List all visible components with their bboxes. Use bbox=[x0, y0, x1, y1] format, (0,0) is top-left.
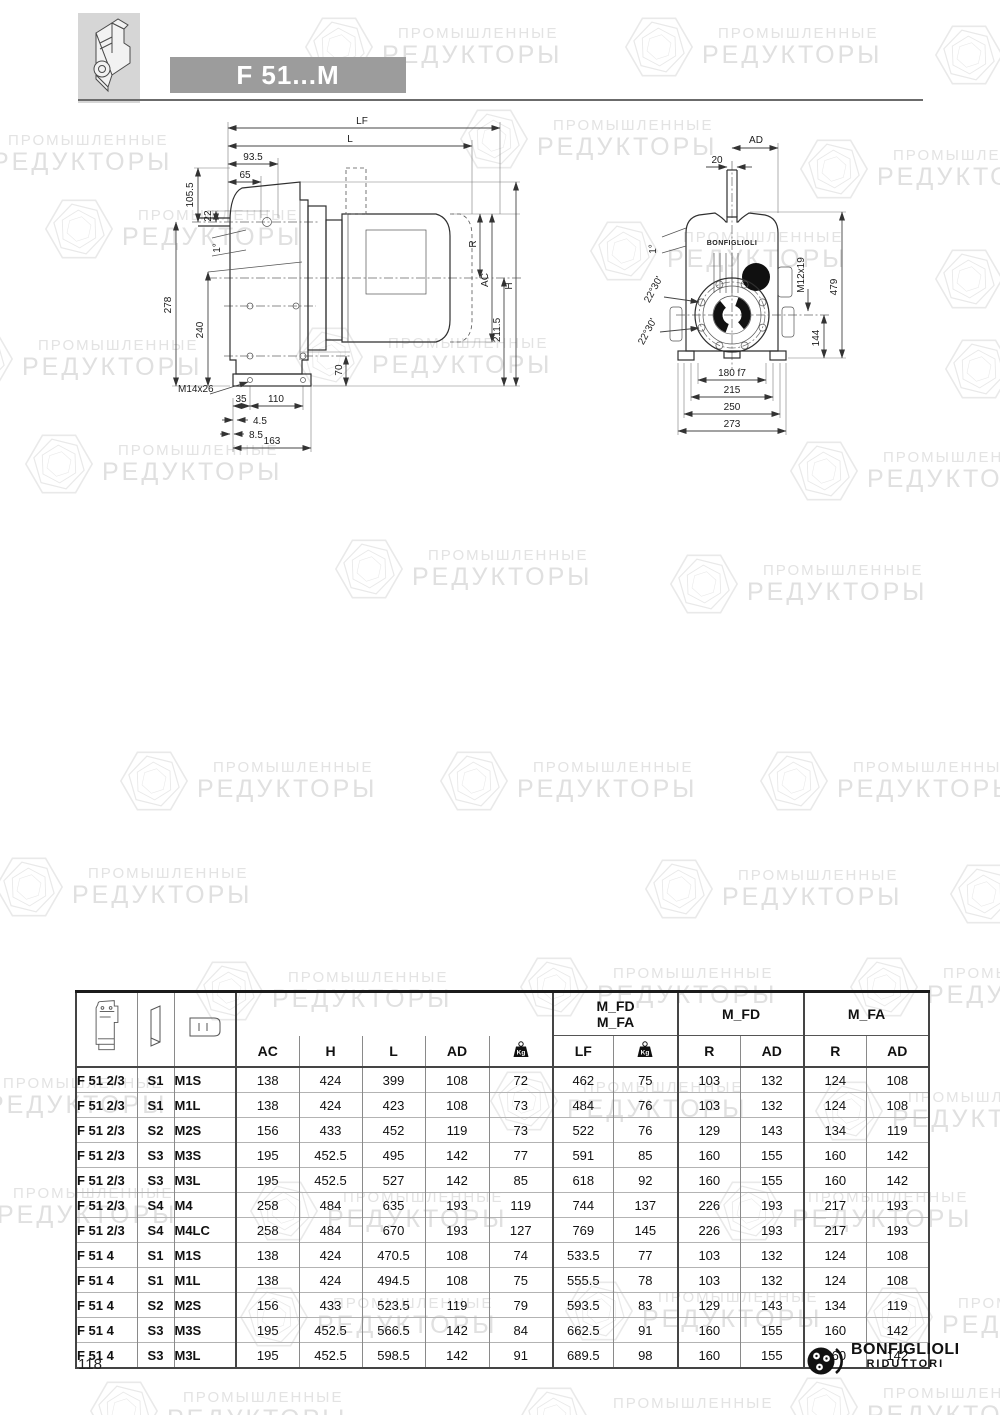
h-value: 424 bbox=[299, 1268, 362, 1293]
ad-value: 108 bbox=[425, 1093, 489, 1118]
series-code: S3 bbox=[137, 1343, 174, 1369]
r-mfd-value: 129 bbox=[678, 1118, 740, 1143]
h-value: 424 bbox=[299, 1093, 362, 1118]
watermark-line2: РЕДУКТОРЫ bbox=[517, 776, 697, 802]
watermark: ПРОМЫШЛЕННЫЕРЕДУКТОРЫ bbox=[515, 1378, 777, 1415]
hexagon-logo bbox=[665, 545, 743, 623]
watermark: ПРОМЫШЛЕННЫЕРЕДУКТОРЫ bbox=[620, 8, 882, 86]
series-code: S3 bbox=[137, 1143, 174, 1168]
table-row: F 51 2/3S3M3L195452.55271428561892160155… bbox=[76, 1168, 929, 1193]
motor-flange-icon bbox=[186, 1014, 224, 1040]
kg-value: 75 bbox=[489, 1268, 553, 1293]
lf-value: 484 bbox=[553, 1093, 613, 1118]
h-value: 452.5 bbox=[299, 1168, 362, 1193]
dim-label-m14x26: M14x26 bbox=[178, 384, 214, 395]
kg-value: 74 bbox=[489, 1243, 553, 1268]
watermark-line2: РЕДУКТОРЫ bbox=[702, 42, 882, 68]
ac-value: 195 bbox=[236, 1168, 299, 1193]
r-mfa-value: 134 bbox=[804, 1293, 866, 1318]
watermark-line1: ПРОМЫШЛЕННЫЕ bbox=[702, 26, 882, 42]
brand-label: BONFIGLIOLI bbox=[707, 240, 758, 247]
section-banner: F 51...M bbox=[170, 57, 406, 93]
dim-label-105-5: 105.5 bbox=[185, 182, 196, 207]
motor-size: M3L bbox=[174, 1168, 236, 1193]
col-header-l: L bbox=[362, 1036, 425, 1068]
watermark-line2: РЕДУКТОРЫ bbox=[867, 1402, 1000, 1415]
watermark-line2: РЕДУКТОРЫ bbox=[412, 564, 592, 590]
kg-value: 72 bbox=[489, 1067, 553, 1093]
motor-size: M1L bbox=[174, 1093, 236, 1118]
dim-label-65: 65 bbox=[239, 170, 251, 181]
kg-value: 91 bbox=[489, 1343, 553, 1369]
series-code: S2 bbox=[137, 1118, 174, 1143]
watermark-line2: РЕДУКТОРЫ bbox=[72, 882, 252, 908]
ad-mfd-value: 132 bbox=[740, 1093, 804, 1118]
shaft-option-icon-cell bbox=[137, 992, 174, 1068]
motor-size: M1S bbox=[174, 1243, 236, 1268]
h-value: 452.5 bbox=[299, 1343, 362, 1369]
ad-mfd-value: 143 bbox=[740, 1293, 804, 1318]
ad-mfa-value: 193 bbox=[866, 1218, 929, 1243]
table-row: F 51 2/3S1M1L138424423108734847610313212… bbox=[76, 1093, 929, 1118]
r-mfa-value: 134 bbox=[804, 1118, 866, 1143]
catalog-page: ПРОМЫШЛЕННЫЕРЕДУКТОРЫПРОМЫШЛЕННЫЕРЕДУКТО… bbox=[0, 0, 1000, 1415]
r-mfd-value: 129 bbox=[678, 1293, 740, 1318]
ad-value: 142 bbox=[425, 1168, 489, 1193]
kg-fd-fa-value: 137 bbox=[613, 1193, 678, 1218]
dimension-labels: LF L 93.5 65 22 105.5 1° 278 240 R AC 21… bbox=[163, 116, 515, 447]
plain-dims-header-space bbox=[236, 992, 553, 1036]
table-row: F 51 2/3S3M3S195452.54951427759185160155… bbox=[76, 1143, 929, 1168]
hexagon-logo bbox=[945, 855, 1000, 933]
watermark: ПРОМЫШЛЕННЫЕРЕДУКТОРЫ bbox=[640, 850, 902, 928]
dim-label-angle-1: 1° bbox=[648, 244, 659, 254]
ad-mfa-value: 108 bbox=[866, 1067, 929, 1093]
ad-mfa-value: 193 bbox=[866, 1193, 929, 1218]
dim-label-22-30-b: 22°30' bbox=[636, 317, 659, 347]
watermark-line1: ПРОМЫШЛЕННЫЕ bbox=[272, 970, 452, 986]
dim-label-22-30-a: 22°30' bbox=[642, 275, 665, 305]
dim-label-4-5: 4.5 bbox=[253, 416, 267, 427]
ad-mfa-value: 142 bbox=[866, 1318, 929, 1343]
kg-value: 127 bbox=[489, 1218, 553, 1243]
series-code: S4 bbox=[137, 1218, 174, 1243]
dim-label-273: 273 bbox=[724, 419, 741, 430]
r-mfd-value: 103 bbox=[678, 1243, 740, 1268]
series-code: S1 bbox=[137, 1243, 174, 1268]
watermark-line2: РЕДУКТОРЫ bbox=[837, 776, 1000, 802]
svg-text:Kg: Kg bbox=[641, 1050, 650, 1057]
watermark-line1: ПРОМЫШЛЕННЫЕ bbox=[382, 26, 562, 42]
lf-value: 591 bbox=[553, 1143, 613, 1168]
series-code: S3 bbox=[137, 1168, 174, 1193]
ad-value: 108 bbox=[425, 1268, 489, 1293]
motor-size: M1S bbox=[174, 1067, 236, 1093]
group-label-mfd: M_FD bbox=[554, 998, 677, 1014]
ad-mfa-value: 108 bbox=[866, 1093, 929, 1118]
lf-value: 744 bbox=[553, 1193, 613, 1218]
watermark: ПРОМЫШЛЕННЫЕРЕДУКТОРЫ bbox=[85, 1372, 347, 1415]
ad-mfa-value: 108 bbox=[866, 1268, 929, 1293]
hexagon-logo bbox=[435, 742, 513, 820]
group-header-mfd: M_FD bbox=[678, 992, 804, 1036]
table-row: F 51 4S1M1S138424470.510874533.577103132… bbox=[76, 1243, 929, 1268]
kg-value: 119 bbox=[489, 1193, 553, 1218]
r-mfa-value: 160 bbox=[804, 1168, 866, 1193]
ad-mfd-value: 155 bbox=[740, 1168, 804, 1193]
h-value: 433 bbox=[299, 1118, 362, 1143]
hexagon-logo bbox=[40, 190, 118, 268]
ac-value: 195 bbox=[236, 1343, 299, 1369]
dim-label-144: 144 bbox=[811, 329, 822, 346]
ad-value: 142 bbox=[425, 1318, 489, 1343]
kg-value: 73 bbox=[489, 1118, 553, 1143]
l-value: 494.5 bbox=[362, 1268, 425, 1293]
kg-fd-fa-value: 91 bbox=[613, 1318, 678, 1343]
dimensions-table: M_FD M_FA M_FD M_FA AC H L AD Kg bbox=[75, 990, 930, 1369]
lf-value: 593.5 bbox=[553, 1293, 613, 1318]
dim-label-22: 22 bbox=[203, 210, 214, 222]
model: F 51 2/3 bbox=[76, 1193, 137, 1218]
lf-value: 662.5 bbox=[553, 1318, 613, 1343]
group-header-mfa: M_FA bbox=[804, 992, 929, 1036]
gearbox-thumbnail-sketch bbox=[78, 13, 140, 103]
ad-mfa-value: 142 bbox=[866, 1143, 929, 1168]
l-value: 399 bbox=[362, 1067, 425, 1093]
ac-value: 258 bbox=[236, 1193, 299, 1218]
ad-value: 142 bbox=[425, 1343, 489, 1369]
watermark-line2: РЕДУКТОРЫ bbox=[747, 579, 927, 605]
watermark-line2: РЕДУКТОРЫ bbox=[382, 42, 562, 68]
series-code: S1 bbox=[137, 1067, 174, 1093]
ad-value: 119 bbox=[425, 1118, 489, 1143]
hexagon-logo bbox=[930, 16, 1000, 94]
l-value: 470.5 bbox=[362, 1243, 425, 1268]
h-value: 424 bbox=[299, 1067, 362, 1093]
col-header-ac: AC bbox=[236, 1036, 299, 1068]
r-mfa-value: 124 bbox=[804, 1067, 866, 1093]
model: F 51 2/3 bbox=[76, 1143, 137, 1168]
table-row: F 51 4S3M3L195452.5598.514291689.5981601… bbox=[76, 1343, 929, 1369]
watermark-line1: ПРОМЫШЛЕННЫЕ bbox=[0, 133, 172, 149]
dim-label-93-5: 93.5 bbox=[243, 152, 263, 163]
r-mfa-value: 160 bbox=[804, 1143, 866, 1168]
watermark: ПРОМЫШЛЕННЫЕРЕДУКТОРЫ bbox=[930, 16, 1000, 94]
col-header-ad-mfa: AD bbox=[866, 1036, 929, 1068]
watermark-line1: ПРОМЫШЛЕННЫЕ bbox=[722, 868, 902, 884]
kg-fd-fa-value: 145 bbox=[613, 1218, 678, 1243]
gearbox-type-icon-cell bbox=[76, 992, 137, 1068]
h-value: 452.5 bbox=[299, 1318, 362, 1343]
dim-label-250: 250 bbox=[724, 402, 741, 413]
hexagon-logo bbox=[640, 850, 718, 928]
lf-value: 769 bbox=[553, 1218, 613, 1243]
gear-housing bbox=[198, 182, 311, 386]
kg-fd-fa-value: 78 bbox=[613, 1268, 678, 1293]
watermark-line2: РЕДУКТОРЫ bbox=[722, 884, 902, 910]
ad-value: 108 bbox=[425, 1243, 489, 1268]
model: F 51 2/3 bbox=[76, 1118, 137, 1143]
watermark: ПРОМЫШЛЕННЫЕРЕДУКТОРЫ bbox=[330, 530, 592, 608]
series-code: S1 bbox=[137, 1268, 174, 1293]
ad-mfd-value: 132 bbox=[740, 1268, 804, 1293]
watermark: ПРОМЫШЛЕННЫЕРЕДУКТОРЫ bbox=[435, 742, 697, 820]
dim-label-180f7: 180 f7 bbox=[718, 368, 746, 379]
kg-value: 73 bbox=[489, 1093, 553, 1118]
ac-value: 195 bbox=[236, 1318, 299, 1343]
ad-mfd-value: 193 bbox=[740, 1193, 804, 1218]
ad-value: 108 bbox=[425, 1067, 489, 1093]
lf-value: 522 bbox=[553, 1118, 613, 1143]
kg-value: 85 bbox=[489, 1168, 553, 1193]
ad-mfd-value: 155 bbox=[740, 1318, 804, 1343]
r-mfd-value: 160 bbox=[678, 1343, 740, 1369]
h-value: 484 bbox=[299, 1193, 362, 1218]
l-value: 635 bbox=[362, 1193, 425, 1218]
ad-mfd-value: 132 bbox=[740, 1067, 804, 1093]
dim-label-l: L bbox=[347, 134, 353, 145]
hexagon-logo bbox=[0, 848, 68, 926]
table-row: F 51 4S2M2S156433523.511979593.583129143… bbox=[76, 1293, 929, 1318]
dim-label-35: 35 bbox=[235, 394, 247, 405]
col-header-ad-mfd: AD bbox=[740, 1036, 804, 1068]
kg-fd-fa-value: 92 bbox=[613, 1168, 678, 1193]
dim-label-278: 278 bbox=[163, 296, 174, 313]
motor-body bbox=[308, 168, 472, 350]
model: F 51 4 bbox=[76, 1268, 137, 1293]
logo-name: BONFIGLIOLI bbox=[851, 1342, 960, 1359]
motor-size: M4 bbox=[174, 1193, 236, 1218]
r-mfa-value: 124 bbox=[804, 1268, 866, 1293]
dim-label-ad: AD bbox=[749, 135, 763, 146]
table-row: F 51 4S1M1L138424494.510875555.578103132… bbox=[76, 1268, 929, 1293]
hexagon-logo bbox=[515, 1378, 593, 1415]
logo-subtitle: RIDUTTORI bbox=[866, 1359, 944, 1371]
kg-fd-fa-value: 98 bbox=[613, 1343, 678, 1369]
motor-option-icon-cell bbox=[174, 992, 236, 1068]
watermark-line2: РЕДУКТОРЫ bbox=[927, 982, 1000, 1008]
watermark-line1: ПРОМЫШЛЕННЫЕ bbox=[837, 760, 1000, 776]
ad-mfa-value: 108 bbox=[866, 1243, 929, 1268]
dim-label-163: 163 bbox=[264, 436, 281, 447]
model: F 51 2/3 bbox=[76, 1093, 137, 1118]
series-code: S3 bbox=[137, 1318, 174, 1343]
dim-label-lf: LF bbox=[356, 116, 368, 127]
header-divider bbox=[78, 99, 923, 101]
r-mfd-value: 226 bbox=[678, 1193, 740, 1218]
ac-value: 195 bbox=[236, 1143, 299, 1168]
kg-fd-fa-value: 76 bbox=[613, 1118, 678, 1143]
l-value: 452 bbox=[362, 1118, 425, 1143]
model: F 51 2/3 bbox=[76, 1168, 137, 1193]
motor-size: M1L bbox=[174, 1268, 236, 1293]
l-value: 670 bbox=[362, 1218, 425, 1243]
model: F 51 2/3 bbox=[76, 1218, 137, 1243]
r-mfa-value: 124 bbox=[804, 1093, 866, 1118]
series-code: S1 bbox=[137, 1093, 174, 1118]
l-value: 523.5 bbox=[362, 1293, 425, 1318]
col-header-h: H bbox=[299, 1036, 362, 1068]
table-row: F 51 2/3S1M1S138424399108724627510313212… bbox=[76, 1067, 929, 1093]
dim-label-215: 215 bbox=[724, 385, 741, 396]
product-thumbnail bbox=[78, 13, 140, 103]
ac-value: 156 bbox=[236, 1118, 299, 1143]
page-number: 118 bbox=[78, 1356, 102, 1373]
r-mfd-value: 226 bbox=[678, 1218, 740, 1243]
watermark: ПРОМЫШЛЕННЫЕРЕДУКТОРЫ bbox=[115, 742, 377, 820]
dim-label-angle-1: 1° bbox=[212, 243, 223, 253]
kg-value: 77 bbox=[489, 1143, 553, 1168]
watermark-line2: РЕДУКТОРЫ bbox=[167, 1406, 347, 1415]
ad-mfd-value: 155 bbox=[740, 1343, 804, 1369]
dim-label-240: 240 bbox=[195, 321, 206, 338]
ad-value: 119 bbox=[425, 1293, 489, 1318]
watermark-line1: ПРОМЫШЛЕННЫЕ bbox=[747, 563, 927, 579]
dim-label-8-5: 8.5 bbox=[249, 430, 263, 441]
motor-size: M4LC bbox=[174, 1218, 236, 1243]
group-header-mfd-mfa: M_FD M_FA bbox=[553, 992, 678, 1036]
watermark-line1: ПРОМЫШЛЕННЫЕ bbox=[597, 966, 777, 982]
watermark-line1: ПРОМЫШЛЕННЫЕ bbox=[942, 1296, 1000, 1312]
r-mfd-value: 160 bbox=[678, 1168, 740, 1193]
ac-value: 138 bbox=[236, 1243, 299, 1268]
watermark: ПРОМЫШЛЕННЫЕРЕДУКТОРЫ bbox=[755, 742, 1000, 820]
watermark-line2: РЕДУКТОРЫ bbox=[942, 1312, 1000, 1338]
r-mfa-value: 160 bbox=[804, 1318, 866, 1343]
weight-kg-icon: Kg bbox=[636, 1041, 654, 1058]
model: F 51 4 bbox=[76, 1293, 137, 1318]
watermark: ПРОМЫШЛЕННЫЕРЕДУКТОРЫ bbox=[0, 848, 252, 926]
watermark-line1: ПРОМЫШЛЕННЫЕ bbox=[867, 1386, 1000, 1402]
kg-fd-fa-value: 75 bbox=[613, 1067, 678, 1093]
table-row: F 51 2/3S4M42584846351931197441372261932… bbox=[76, 1193, 929, 1218]
ad-mfa-value: 119 bbox=[866, 1118, 929, 1143]
motor-size: M3S bbox=[174, 1318, 236, 1343]
dim-label-h: H bbox=[504, 282, 515, 289]
hexagon-logo bbox=[330, 530, 408, 608]
dim-label-110: 110 bbox=[268, 394, 284, 405]
watermark-line1: ПРОМЫШЛЕННЫЕ bbox=[517, 760, 697, 776]
r-mfd-value: 160 bbox=[678, 1143, 740, 1168]
weight-kg-icon: Kg bbox=[512, 1041, 530, 1058]
group-label-mfa: M_FA bbox=[554, 1014, 677, 1030]
series-code: S4 bbox=[137, 1193, 174, 1218]
hexagon-logo bbox=[755, 742, 833, 820]
ac-value: 138 bbox=[236, 1093, 299, 1118]
table-row: F 51 4S3M3S195452.5566.514284662.5911601… bbox=[76, 1318, 929, 1343]
kg-fd-fa-value: 77 bbox=[613, 1243, 678, 1268]
watermark: ПРОМЫШЛЕННЫЕРЕДУКТОРЫ bbox=[945, 855, 1000, 933]
l-value: 495 bbox=[362, 1143, 425, 1168]
ad-mfa-value: 142 bbox=[866, 1168, 929, 1193]
l-value: 423 bbox=[362, 1093, 425, 1118]
watermark: ПРОМЫШЛЕННЫЕРЕДУКТОРЫ bbox=[0, 115, 172, 193]
side-view-drawing: LF L 93.5 65 22 105.5 1° 278 240 R AC 21… bbox=[150, 110, 530, 480]
ad-value: 193 bbox=[425, 1193, 489, 1218]
watermark-line1: ПРОМЫШЛЕННЫЕ bbox=[197, 760, 377, 776]
motor-size: M2S bbox=[174, 1118, 236, 1143]
table-row: F 51 2/3S2M2S156433452119735227612914313… bbox=[76, 1118, 929, 1143]
lf-value: 533.5 bbox=[553, 1243, 613, 1268]
col-header-kg: Kg bbox=[489, 1036, 553, 1068]
motor-size: M3L bbox=[174, 1343, 236, 1369]
col-header-r-mfd: R bbox=[678, 1036, 740, 1068]
dim-label-r: R bbox=[468, 240, 479, 247]
watermark-line2: РЕДУКТОРЫ bbox=[0, 149, 172, 175]
model: F 51 4 bbox=[76, 1318, 137, 1343]
r-mfa-value: 124 bbox=[804, 1243, 866, 1268]
h-value: 452.5 bbox=[299, 1143, 362, 1168]
lf-value: 462 bbox=[553, 1067, 613, 1093]
watermark-line1: ПРОМЫШЛЕННЫЕ bbox=[167, 1390, 347, 1406]
hexagon-logo bbox=[0, 320, 18, 398]
ad-mfd-value: 132 bbox=[740, 1243, 804, 1268]
dim-label-70: 70 bbox=[334, 364, 345, 376]
dim-label-m12x19: M12x19 bbox=[796, 257, 807, 293]
hexagon-logo bbox=[620, 8, 698, 86]
lf-value: 618 bbox=[553, 1168, 613, 1193]
table-body: F 51 2/3S1M1S138424399108724627510313212… bbox=[76, 1067, 929, 1368]
col-header-r-mfa: R bbox=[804, 1036, 866, 1068]
l-value: 598.5 bbox=[362, 1343, 425, 1369]
ad-mfd-value: 155 bbox=[740, 1143, 804, 1168]
h-value: 424 bbox=[299, 1243, 362, 1268]
r-mfd-value: 160 bbox=[678, 1318, 740, 1343]
table-row: F 51 2/3S4M4LC25848467019312776914522619… bbox=[76, 1218, 929, 1243]
r-mfd-value: 103 bbox=[678, 1067, 740, 1093]
dim-label-20: 20 bbox=[711, 155, 723, 166]
watermark-line1: ПРОМЫШЛЕННЫЕ bbox=[927, 966, 1000, 982]
l-value: 566.5 bbox=[362, 1318, 425, 1343]
dimension-lines bbox=[176, 128, 516, 448]
watermark: ПРОМЫШЛЕННЫЕРЕДУКТОРЫ bbox=[665, 545, 927, 623]
cooling-fins bbox=[714, 253, 738, 293]
output-shaft-icon bbox=[146, 1004, 166, 1050]
r-mfd-value: 103 bbox=[678, 1093, 740, 1118]
kg-value: 79 bbox=[489, 1293, 553, 1318]
page-title: F 51...M bbox=[236, 60, 339, 91]
hexagon-logo bbox=[20, 425, 98, 503]
dim-label-ac: AC bbox=[480, 273, 491, 287]
ad-mfd-value: 143 bbox=[740, 1118, 804, 1143]
bonfiglioli-logo: BONFIGLIOLI RIDUTTORI bbox=[806, 1342, 960, 1380]
model: F 51 4 bbox=[76, 1243, 137, 1268]
ac-value: 138 bbox=[236, 1268, 299, 1293]
ad-mfa-value: 119 bbox=[866, 1293, 929, 1318]
dim-label-211-5: 211.5 bbox=[492, 317, 503, 342]
ad-value: 142 bbox=[425, 1143, 489, 1168]
l-value: 527 bbox=[362, 1168, 425, 1193]
col-header-lf: LF bbox=[553, 1036, 613, 1068]
motor-size: M2S bbox=[174, 1293, 236, 1318]
watermark-line1: ПРОМЫШЛЕННЫЕ bbox=[72, 866, 252, 882]
r-mfd-value: 103 bbox=[678, 1268, 740, 1293]
ac-value: 156 bbox=[236, 1293, 299, 1318]
h-value: 433 bbox=[299, 1293, 362, 1318]
svg-text:Kg: Kg bbox=[516, 1049, 525, 1056]
kg-fd-fa-value: 85 bbox=[613, 1143, 678, 1168]
col-header-ad: AD bbox=[425, 1036, 489, 1068]
h-value: 484 bbox=[299, 1218, 362, 1243]
series-code: S2 bbox=[137, 1293, 174, 1318]
col-header-kg2: Kg bbox=[613, 1036, 678, 1068]
watermark-line2: РЕДУКТОРЫ bbox=[197, 776, 377, 802]
kg-fd-fa-value: 83 bbox=[613, 1293, 678, 1318]
ad-mfd-value: 193 bbox=[740, 1218, 804, 1243]
gear-unit-icon bbox=[87, 997, 127, 1057]
r-mfa-value: 217 bbox=[804, 1193, 866, 1218]
r-mfa-value: 217 bbox=[804, 1218, 866, 1243]
